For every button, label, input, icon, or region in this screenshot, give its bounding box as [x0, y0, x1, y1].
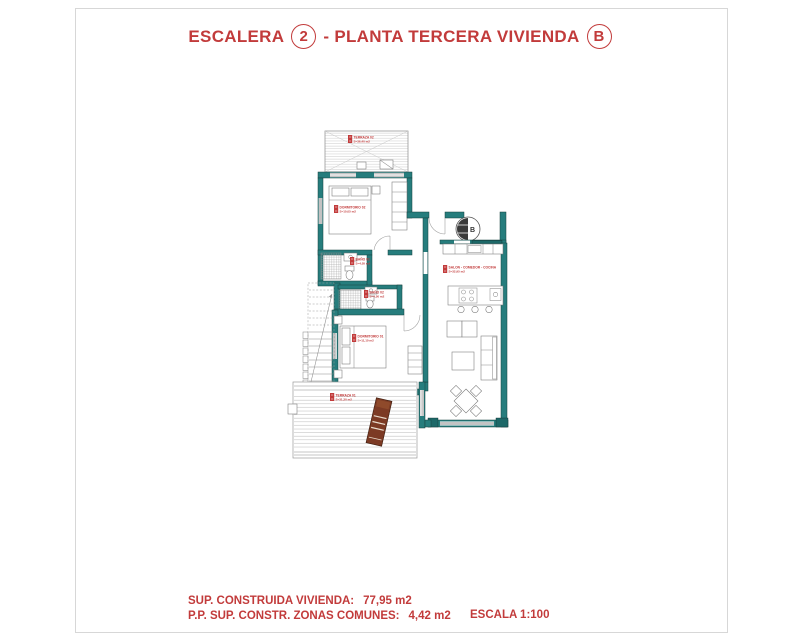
- svg-text:S=4,05 m2: S=4,05 m2: [356, 262, 371, 266]
- pillow: [351, 188, 368, 196]
- room-label-salon: SALON - COMEDOR - COCINA S=32,95 m2: [443, 265, 497, 274]
- footer-label-comunes: P.P. SUP. CONSTR. ZONAS COMUNES:: [188, 610, 400, 622]
- stool: [458, 306, 464, 312]
- pillow: [342, 328, 350, 345]
- planter: [288, 404, 297, 414]
- shower-2: [339, 290, 361, 309]
- terrace1-deck: [294, 394, 416, 450]
- svg-text:S=4,50 m2: S=4,50 m2: [370, 295, 385, 299]
- entrance-marker: B: [456, 217, 480, 241]
- footer-areas: SUP. CONSTRUIDA VIVIENDA:77,95 m2 P.P. S…: [188, 594, 451, 624]
- wardrobe-2: [392, 182, 407, 230]
- coffee-table: [452, 352, 474, 370]
- footer-line-vivienda: SUP. CONSTRUIDA VIVIENDA:77,95 m2: [188, 594, 451, 609]
- nightstand: [372, 186, 380, 194]
- kitchen: [443, 244, 503, 313]
- scale-label: ESCALA 1:100: [470, 609, 549, 621]
- door-arc-bed2: [374, 236, 390, 250]
- shower-1: [321, 253, 341, 279]
- kitchen-island: [448, 286, 503, 305]
- svg-text:S=11,10 m2: S=11,10 m2: [358, 339, 375, 343]
- svg-text:S=31,30 m2: S=31,30 m2: [336, 398, 353, 402]
- svg-text:S=32,95 m2: S=32,95 m2: [449, 270, 466, 274]
- footer-line-comunes: P.P. SUP. CONSTR. ZONAS COMUNES:4,42 m2: [188, 609, 451, 624]
- furniture-dormitorio-02: [329, 182, 407, 250]
- stair-arrow: [329, 294, 332, 299]
- footer-value-comunes: 4,42 m2: [409, 610, 451, 622]
- svg-text:S=10,05 m2: S=10,05 m2: [340, 210, 357, 214]
- sofa: [481, 336, 497, 380]
- entrance-letter: B: [470, 227, 475, 234]
- nightstand: [334, 316, 342, 324]
- pillow: [342, 347, 350, 364]
- dining-table-half: [462, 321, 477, 337]
- room-label-bano-01: BAÑO 01 S=4,05 m2: [350, 257, 371, 266]
- dining-table-half: [447, 321, 462, 337]
- floor-plan: B: [0, 0, 800, 640]
- stair-direction-line: [310, 294, 332, 386]
- toilet-1: [345, 266, 354, 271]
- entry-door-arc: [429, 218, 445, 234]
- svg-text:S=36,40 m2: S=36,40 m2: [354, 140, 371, 144]
- stairs: [303, 283, 334, 390]
- living-furniture: [447, 321, 497, 417]
- footer-value-vivienda: 77,95 m2: [363, 595, 412, 607]
- ac-unit-small: [357, 162, 366, 169]
- room-label-bano-02: BAÑO 02 S=4,50 m2: [364, 290, 385, 299]
- nightstand: [334, 370, 342, 378]
- stool: [472, 306, 478, 312]
- round-dining-set: [450, 385, 481, 416]
- furniture-dormitorio-01: [334, 315, 422, 378]
- door-arc-bed1: [404, 315, 420, 331]
- footer-label-vivienda: SUP. CONSTRUIDA VIVIENDA:: [188, 595, 354, 607]
- pillow: [332, 188, 349, 196]
- stool: [486, 306, 492, 312]
